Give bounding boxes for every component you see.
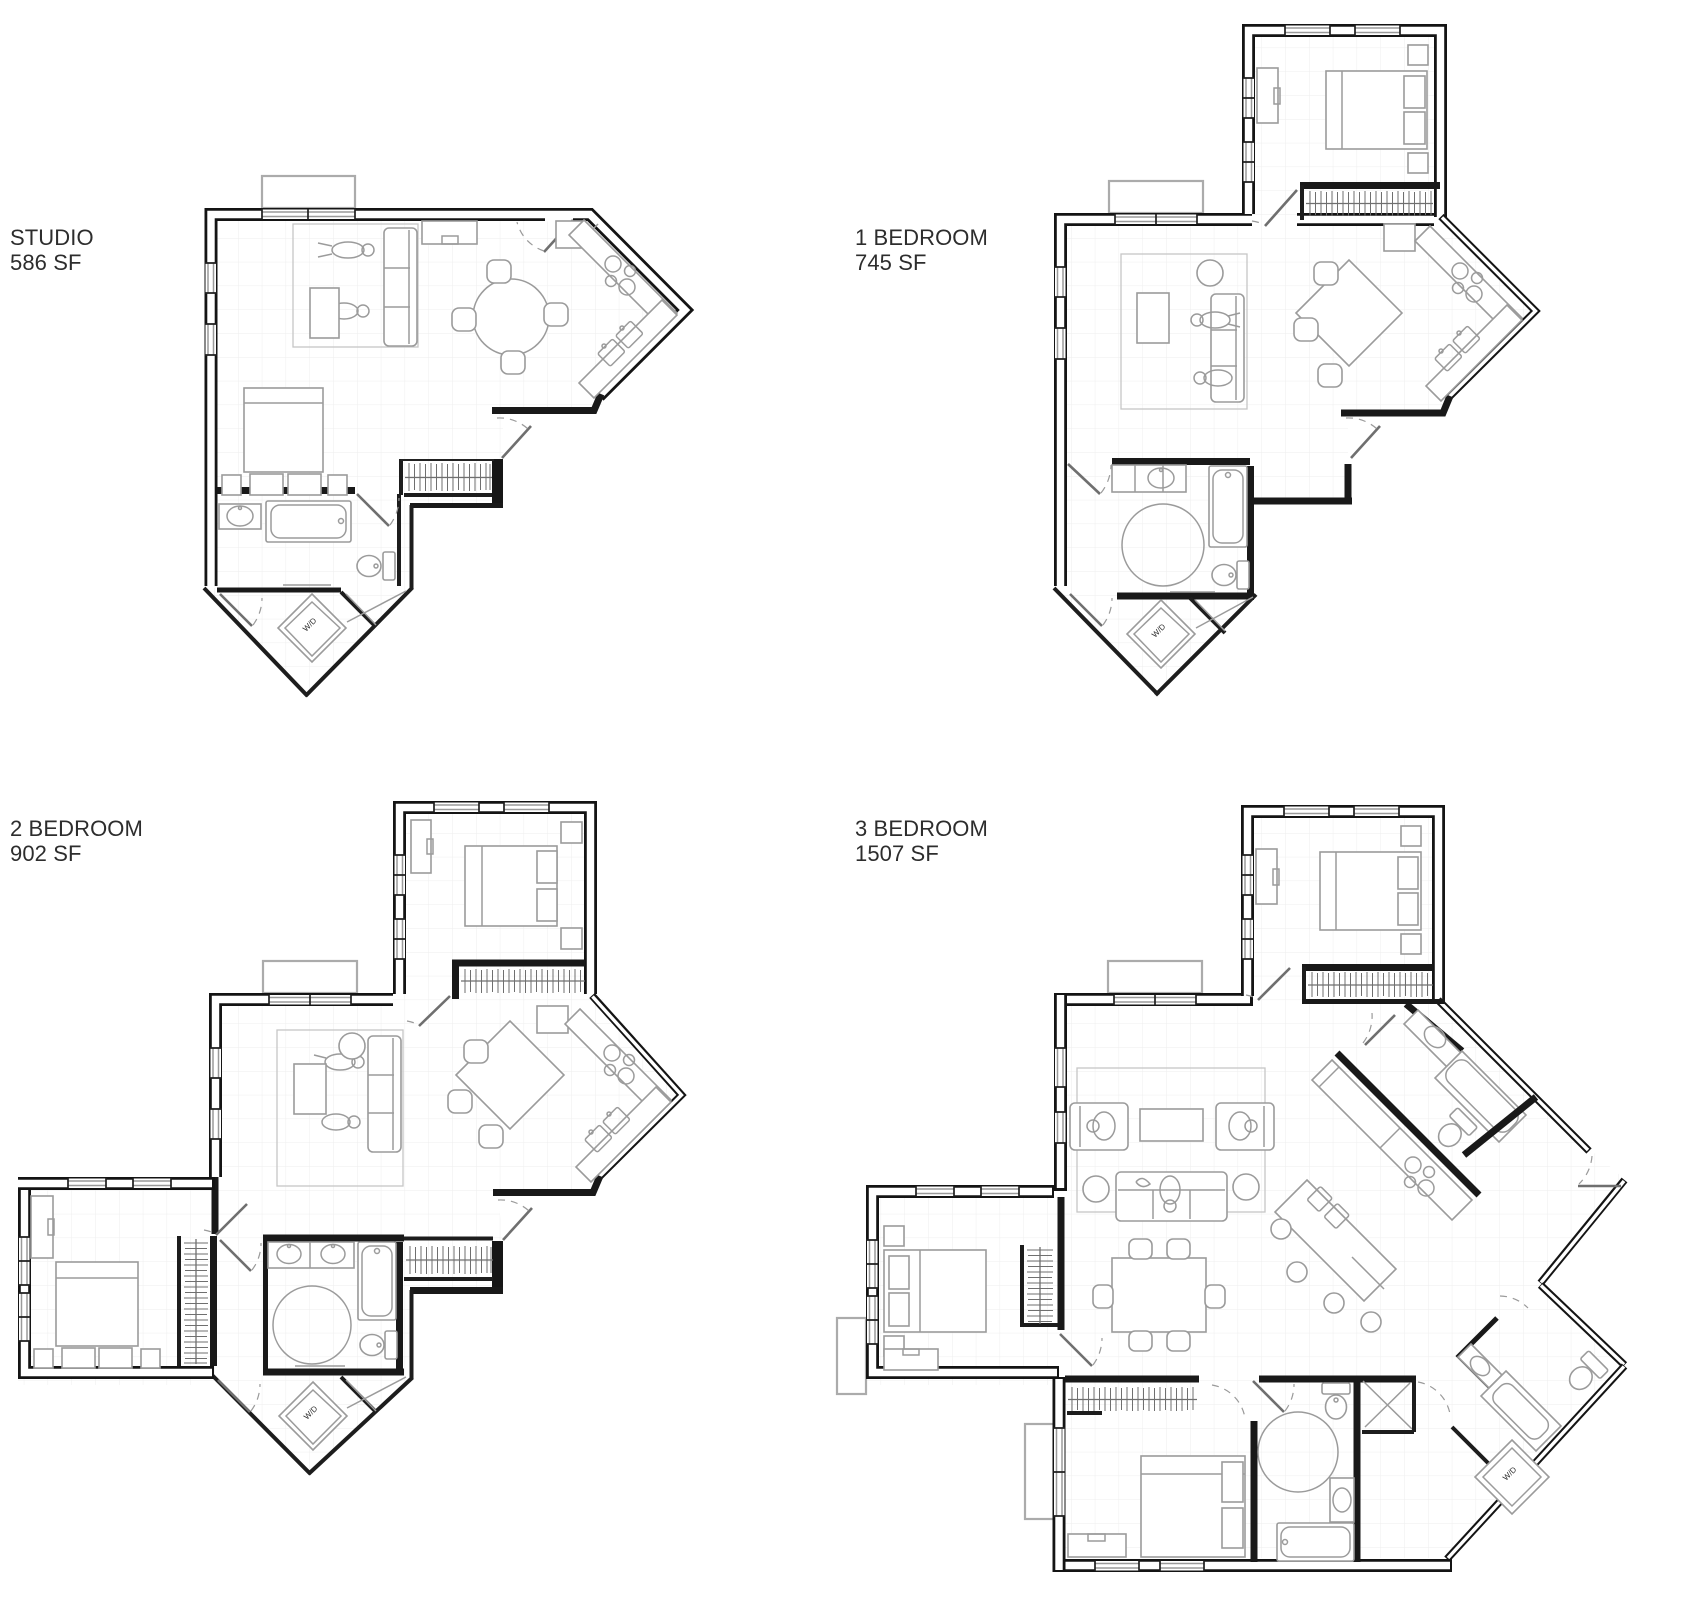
svg-text:2 BEDROOM: 2 BEDROOM <box>10 816 143 841</box>
svg-text:902 SF: 902 SF <box>10 841 82 866</box>
svg-text:1 BEDROOM: 1 BEDROOM <box>855 225 988 250</box>
svg-text:745 SF: 745 SF <box>855 250 927 275</box>
svg-text:STUDIO: STUDIO <box>10 225 94 250</box>
svg-text:3 BEDROOM: 3 BEDROOM <box>855 816 988 841</box>
svg-text:1507 SF: 1507 SF <box>855 841 939 866</box>
svg-text:586 SF: 586 SF <box>10 250 82 275</box>
